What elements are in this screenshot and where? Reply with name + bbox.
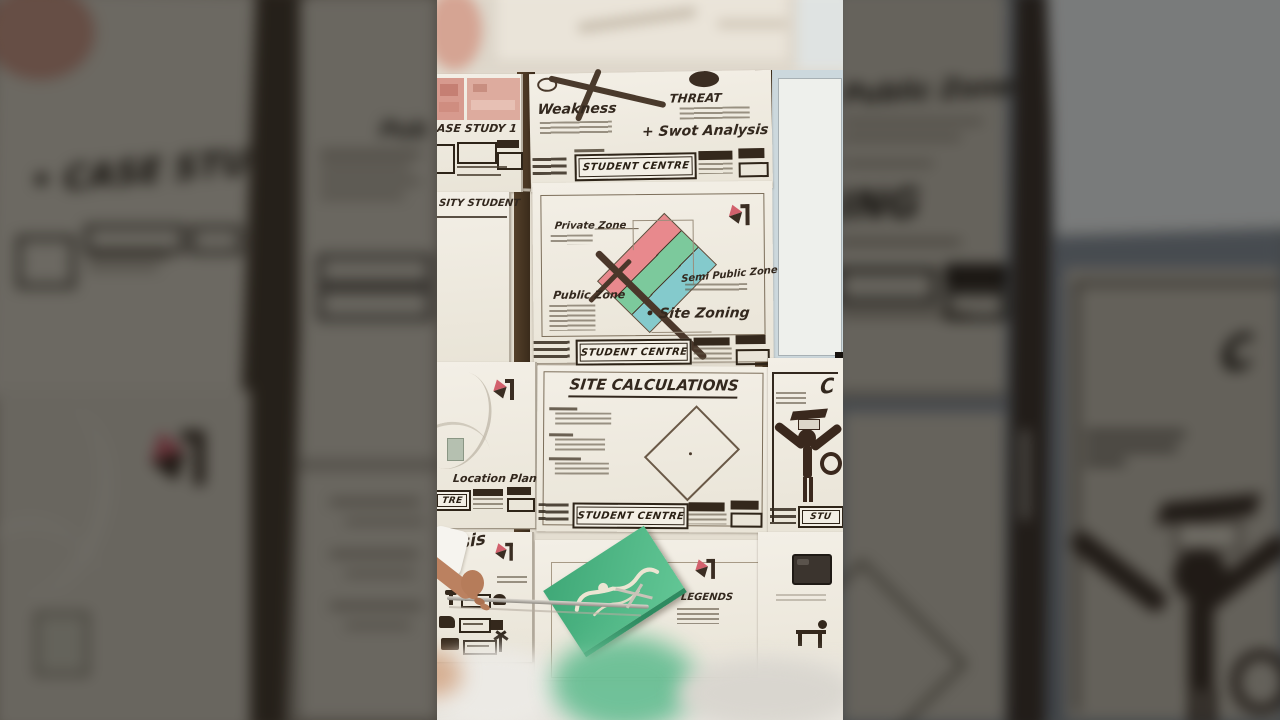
weakness-notes	[540, 121, 612, 136]
title-block-text: STUDENT CENTRE	[582, 160, 690, 173]
map-marker	[447, 438, 464, 461]
blur-text-line	[320, 180, 420, 183]
titleblock-box	[473, 489, 503, 496]
calc-label	[549, 433, 573, 436]
weakness-sketch	[537, 78, 557, 92]
blur-figure-body	[1188, 600, 1214, 690]
blur-box	[85, 225, 185, 253]
blur-text-line	[843, 120, 983, 123]
underline	[437, 216, 507, 218]
blur-box	[17, 236, 75, 288]
blur-grad-border	[1075, 282, 1280, 285]
text-line	[457, 174, 501, 176]
blur-text-line	[1085, 460, 1125, 464]
photo-thumbnail	[467, 78, 520, 120]
blur-text-line	[1085, 446, 1177, 450]
titleblock-notes	[473, 498, 503, 509]
blur-text-line	[320, 166, 410, 169]
titleblock-box	[694, 337, 730, 345]
video-strip: ASE STUDY 1 SITY STUDENT Weakness THREAT…	[437, 0, 843, 720]
form-box	[497, 140, 519, 148]
titleblock-box	[739, 162, 769, 178]
blank-sheet	[778, 78, 842, 356]
titleblock-notes	[532, 157, 566, 175]
legend-box	[459, 618, 491, 633]
blur-figure-leg	[1189, 688, 1200, 720]
north-logo	[150, 428, 207, 490]
site-calculations-sheet: SITE CALCULATIONS STUDENT CENTRE	[536, 365, 769, 533]
blur-text-line	[345, 520, 425, 523]
analysis-notes	[497, 576, 527, 586]
screen-icon	[792, 554, 832, 585]
titleblock-box	[736, 335, 766, 344]
sheet-frame	[772, 372, 774, 522]
top-blur-band	[437, 0, 843, 74]
calc-block	[555, 438, 605, 451]
public-zone-label: Public Zone	[553, 288, 626, 302]
blur-box	[190, 226, 242, 254]
figure-leg	[809, 477, 813, 502]
case-study-1-sheet: ASE STUDY 1	[437, 74, 523, 192]
titleblock-box	[738, 148, 764, 158]
north-logo	[493, 378, 515, 402]
grad-script-fragment: C	[820, 373, 835, 400]
photo-thumbnail	[437, 78, 464, 120]
title-block-text: STUDENT CENTRE	[580, 346, 688, 358]
calc-block	[555, 462, 609, 474]
site-diamond-dot	[689, 452, 692, 455]
threat-label: THREAT	[669, 91, 722, 106]
public-zone-notes	[549, 305, 595, 331]
north-logo	[695, 558, 716, 581]
blur-text-line	[345, 572, 415, 575]
blur-box	[318, 288, 432, 320]
site-zoning-title: • Site Zoning	[645, 305, 751, 322]
north-logo	[728, 203, 750, 227]
bottom-blur-foreground	[437, 640, 843, 720]
blur-figure-head	[1173, 548, 1227, 602]
blur-text-line	[843, 136, 961, 139]
pub-script-fragment: Pub	[379, 118, 428, 143]
blur-figure-leg	[1205, 688, 1216, 720]
text-line	[457, 166, 507, 168]
titleblock-notes	[534, 341, 570, 359]
blur-box	[318, 255, 432, 285]
site-calculations-title: SITE CALCULATIONS	[568, 375, 740, 398]
title-block: STUDENT CENTRE	[576, 339, 692, 366]
threat-notes	[680, 106, 750, 119]
titleblock-box	[731, 501, 759, 510]
blur-text-line	[843, 240, 961, 244]
legends-list	[677, 608, 719, 624]
blur-sheet-calc	[300, 470, 437, 720]
blur-gap-highlight	[1021, 430, 1029, 520]
student-sheet-label: SITY STUDENT	[438, 198, 520, 209]
sketch-notes	[776, 594, 826, 604]
titleblock-box	[698, 151, 732, 161]
title-block-text: TRE	[441, 496, 463, 506]
blur-text-line	[330, 552, 418, 556]
o-ring	[820, 452, 842, 475]
titleblock-box	[736, 349, 770, 365]
title-block-text: STUDENT CENTRE	[576, 510, 684, 522]
titleblock-notes	[699, 163, 733, 175]
zoning-script-fragment: ING	[843, 181, 922, 230]
titleblock-box	[689, 502, 725, 511]
blur-board-gap	[1007, 0, 1053, 720]
legend-icon	[439, 616, 455, 628]
blur-sheet-right	[300, 0, 437, 460]
threat-sketch	[689, 71, 719, 88]
graduate-figure-sheet: C STU	[768, 358, 843, 532]
blur-text-line	[345, 624, 411, 627]
titleblock-notes	[688, 513, 726, 524]
legend-icon	[491, 620, 503, 630]
left-blur-panel: • CASE STUDY Pub	[0, 0, 437, 720]
title-block: STUDENT CENTRE	[574, 152, 696, 181]
case-study-1-title: ASE STUDY 1	[437, 122, 518, 135]
weakness-label: Weakness	[537, 101, 617, 118]
blur-square	[35, 612, 89, 676]
right-blur-panel: Public Zone ING C	[843, 0, 1280, 720]
site-zoning-sheet: Private Zone Semi Public Zone Public Zon…	[532, 181, 774, 363]
private-zone-notes	[551, 235, 593, 245]
titleblock-box	[507, 498, 535, 512]
blur-grad-border	[1075, 282, 1078, 712]
blur-box	[843, 268, 937, 304]
blur-text-line	[320, 152, 420, 156]
blur-text-line	[320, 194, 404, 197]
blur-text-line	[88, 254, 170, 258]
titleblock-notes	[770, 508, 796, 524]
blur-text-line	[843, 162, 933, 165]
calc-label	[549, 457, 581, 460]
swot-sheet: Weakness THREAT + Swot Analysis STUDENT …	[529, 70, 773, 192]
blur-text-line	[1085, 432, 1185, 436]
blur-text-line	[843, 312, 969, 316]
title-block: STU	[798, 506, 843, 528]
titleblock-box	[507, 487, 531, 495]
grad-script-fragment: C	[1219, 322, 1256, 383]
blur-text-line	[330, 500, 420, 504]
titleblock-notes	[694, 347, 732, 359]
title-block-text: STU	[810, 512, 833, 522]
north-logo	[495, 542, 514, 562]
figure-head	[798, 429, 816, 447]
title-block: TRE	[437, 490, 471, 511]
person-desk-icon	[818, 620, 827, 629]
blur-text-line	[330, 604, 422, 608]
form-box	[457, 142, 497, 164]
location-plan-sheet: Location Plan TRE	[437, 362, 537, 528]
location-plan-label: Location Plan	[452, 472, 537, 485]
grad-notes	[776, 392, 806, 404]
semi-public-notes	[685, 283, 747, 292]
blur-blank-sheet	[1047, 0, 1280, 238]
blur-sheet-edge	[843, 392, 1005, 398]
titleblock-notes	[538, 503, 568, 521]
titleblock-tab	[574, 149, 604, 153]
blur-figure-cap-band	[1175, 520, 1241, 552]
title-block: STUDENT CENTRE	[572, 502, 688, 529]
private-zone-label: Private Zone	[554, 220, 627, 232]
swot-analysis-label: + Swot Analysis	[641, 122, 769, 140]
student-sheet: SITY STUDENT	[437, 192, 511, 362]
video-frame: • CASE STUDY Pub	[0, 0, 1280, 720]
calc-block	[555, 412, 611, 426]
figure-body	[803, 446, 812, 478]
form-box	[437, 144, 455, 174]
figure-leg	[803, 477, 807, 502]
titleblock-box	[730, 513, 762, 528]
calc-label	[549, 407, 577, 410]
blur-box	[945, 264, 1007, 288]
blur-text-line	[88, 266, 158, 269]
